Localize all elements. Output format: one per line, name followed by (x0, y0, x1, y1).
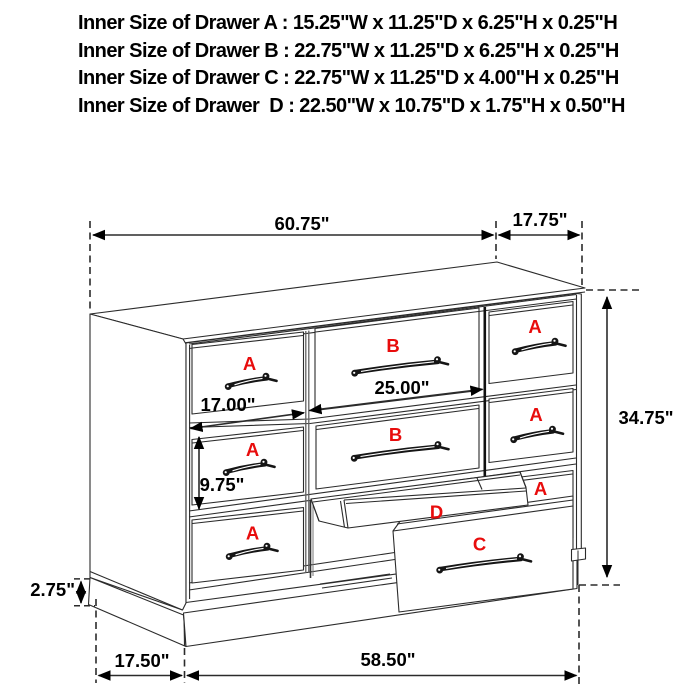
svg-text:A: A (243, 353, 256, 374)
svg-text:C: C (473, 534, 486, 555)
svg-text:17.75": 17.75" (512, 209, 567, 230)
svg-text:A: A (528, 316, 541, 337)
svg-text:B: B (389, 424, 402, 445)
svg-text:A: A (529, 404, 542, 425)
svg-text:A: A (246, 439, 259, 460)
svg-text:D: D (430, 502, 443, 523)
svg-text:17.50": 17.50" (114, 650, 169, 671)
svg-text:A: A (534, 478, 547, 499)
svg-text:17.00": 17.00" (200, 394, 255, 415)
svg-text:25.00": 25.00" (374, 377, 429, 398)
svg-text:58.50": 58.50" (360, 649, 415, 670)
svg-text:B: B (386, 335, 399, 356)
svg-text:34.75": 34.75" (619, 407, 674, 428)
svg-text:9.75": 9.75" (200, 474, 245, 495)
svg-text:A: A (246, 523, 259, 544)
svg-text:2.75": 2.75" (30, 579, 75, 600)
svg-text:60.75": 60.75" (274, 213, 329, 234)
